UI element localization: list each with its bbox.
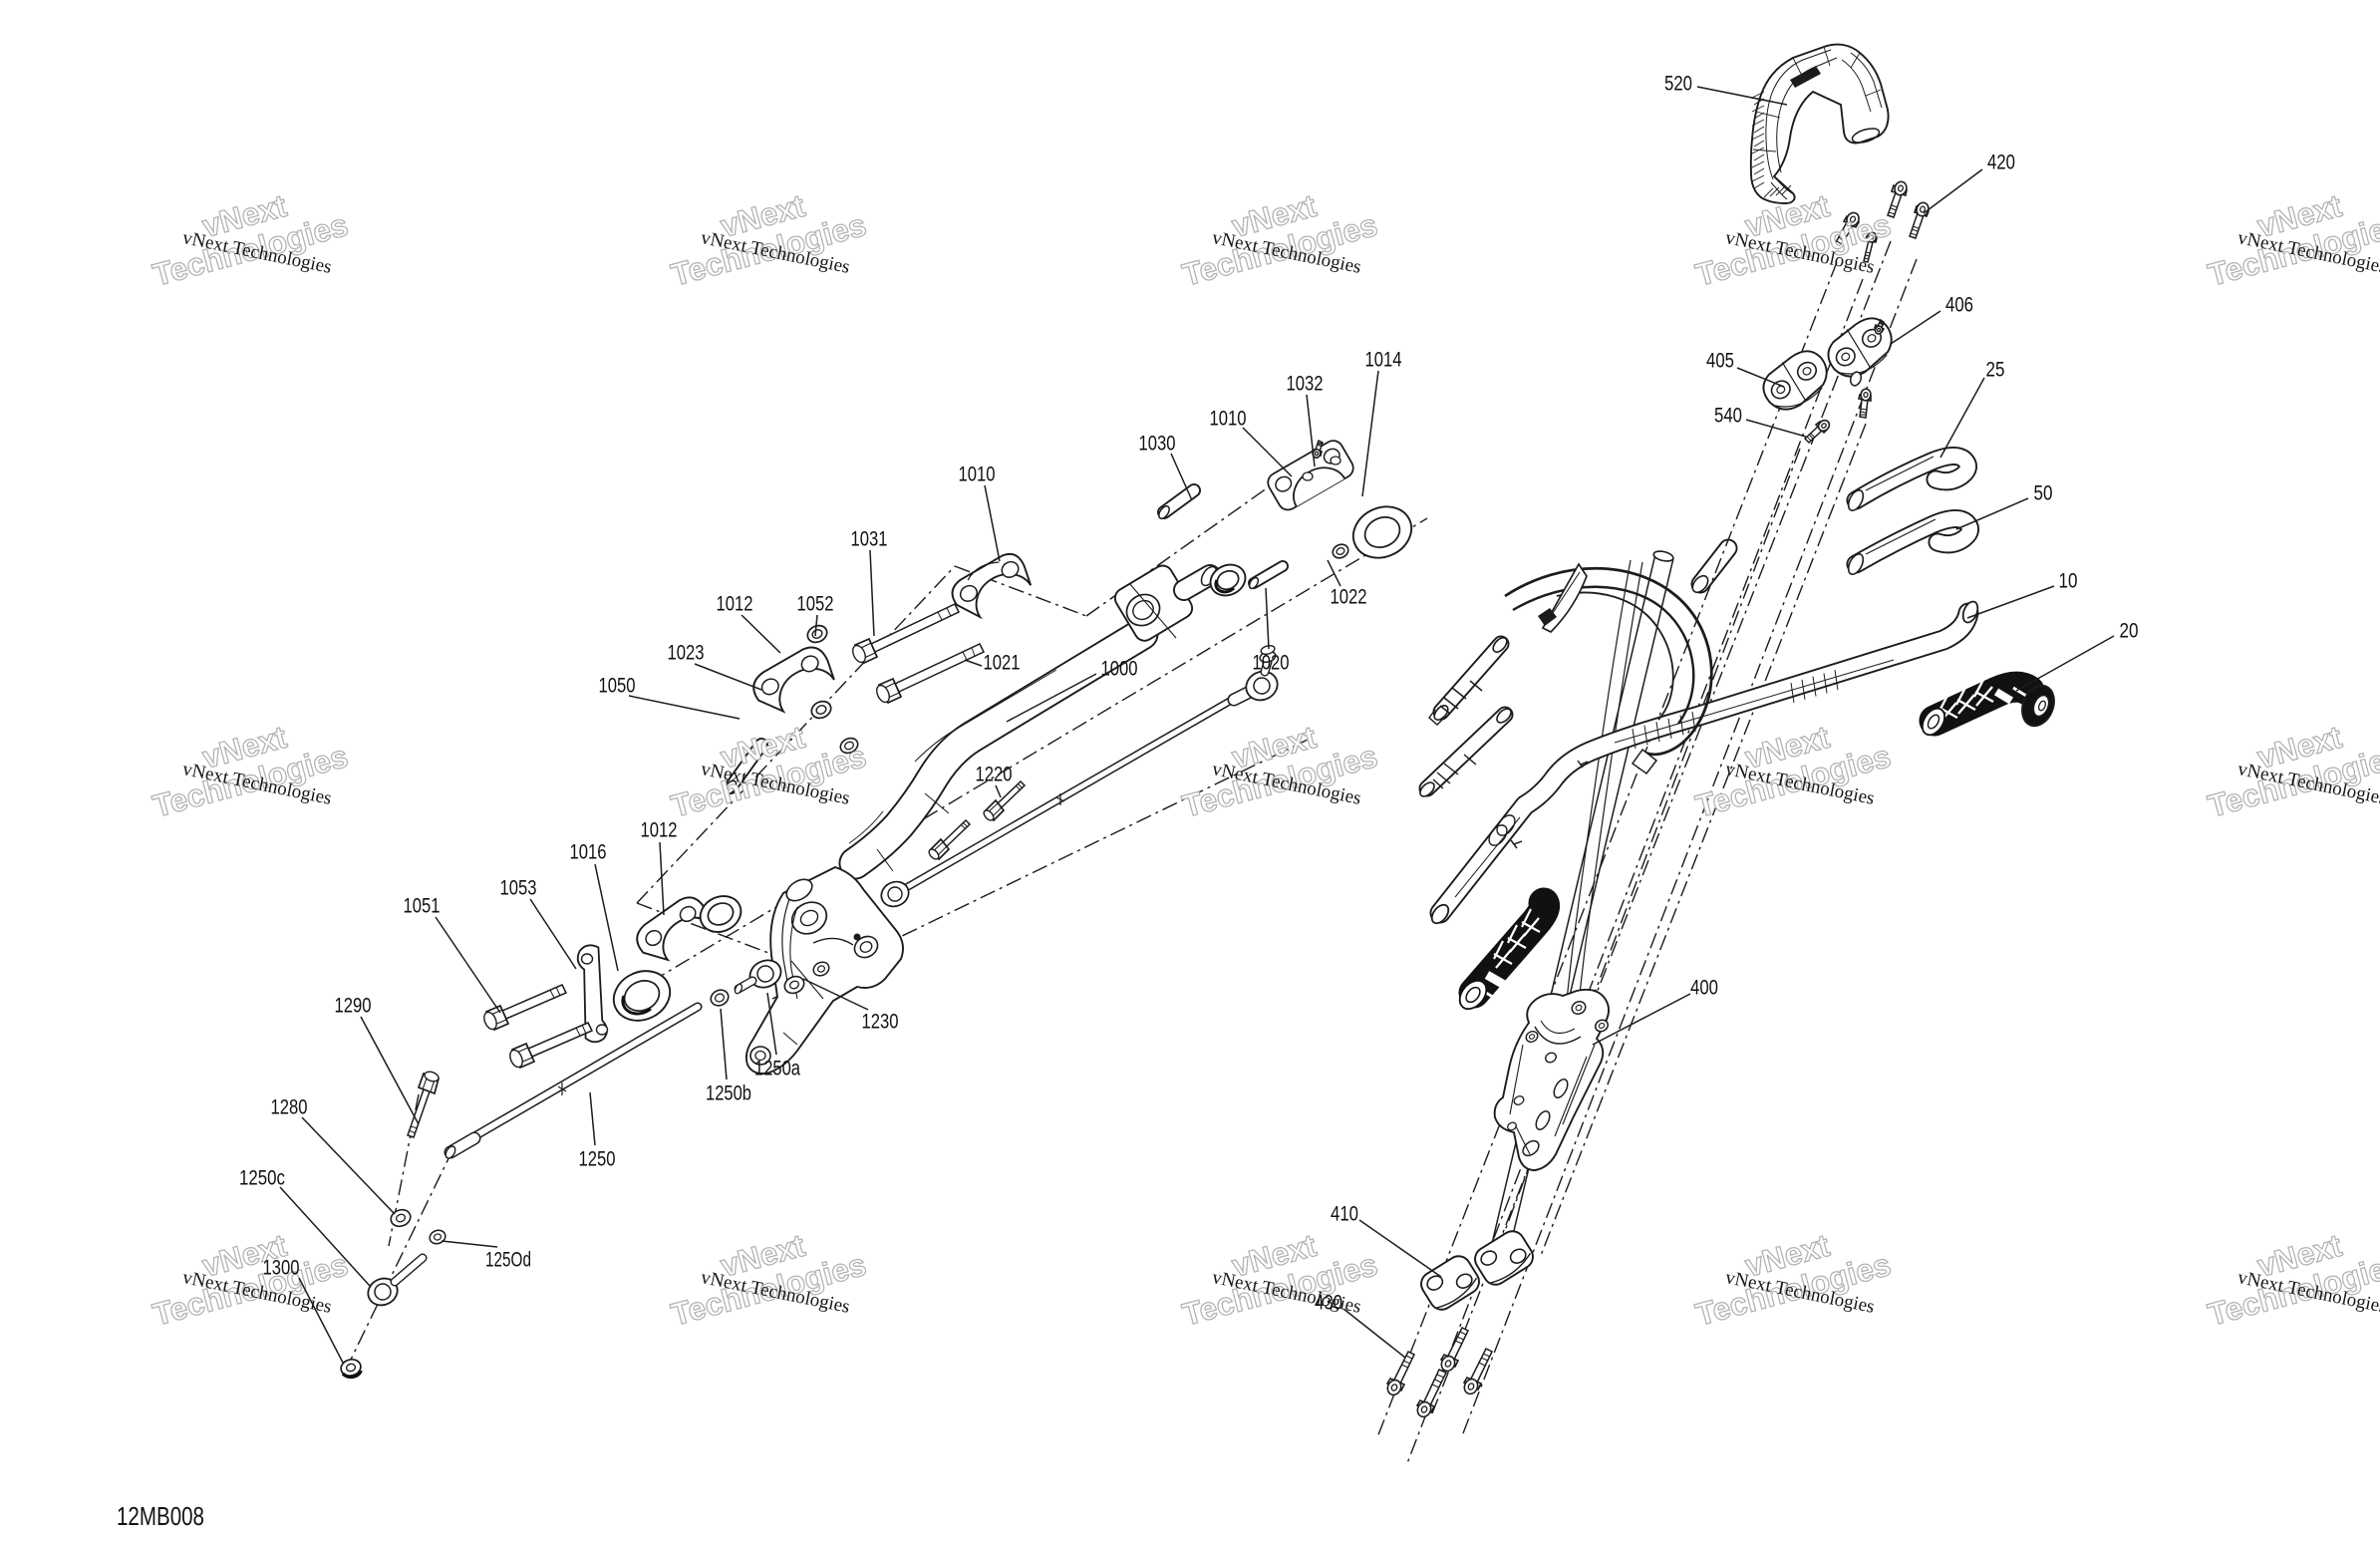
svg-text:1030: 1030 (1139, 432, 1176, 456)
svg-text:540: 540 (1714, 404, 1742, 428)
svg-text:1000: 1000 (1101, 657, 1138, 681)
svg-text:1050: 1050 (599, 674, 636, 698)
svg-text:1014: 1014 (1365, 348, 1402, 372)
svg-text:1250a: 1250a (754, 1057, 800, 1081)
svg-text:1032: 1032 (1287, 372, 1324, 396)
svg-text:1220: 1220 (976, 763, 1013, 786)
svg-text:1020: 1020 (1253, 651, 1290, 675)
svg-text:1230: 1230 (862, 1010, 899, 1034)
svg-text:1300: 1300 (263, 1256, 300, 1280)
svg-text:1022: 1022 (1331, 585, 1367, 609)
svg-text:1031: 1031 (851, 527, 888, 551)
svg-text:1012: 1012 (717, 592, 753, 616)
svg-text:420: 420 (1987, 151, 2015, 174)
svg-text:1250: 1250 (579, 1147, 616, 1171)
svg-text:1250b: 1250b (706, 1081, 751, 1105)
svg-text:1010: 1010 (959, 463, 996, 486)
svg-text:430: 430 (1315, 1291, 1342, 1315)
svg-text:1280: 1280 (271, 1095, 308, 1119)
svg-text:1021: 1021 (984, 651, 1021, 675)
svg-text:1052: 1052 (797, 592, 834, 616)
svg-text:405: 405 (1706, 349, 1734, 373)
svg-text:406: 406 (1945, 293, 1973, 317)
svg-text:20: 20 (2120, 619, 2139, 643)
svg-text:520: 520 (1664, 72, 1692, 96)
svg-text:410: 410 (1331, 1202, 1358, 1226)
svg-text:1010: 1010 (1210, 407, 1247, 431)
svg-text:1290: 1290 (335, 994, 372, 1018)
svg-text:1250c: 1250c (239, 1166, 285, 1190)
svg-text:1053: 1053 (500, 876, 537, 900)
svg-text:50: 50 (2034, 481, 2053, 505)
svg-text:1023: 1023 (668, 641, 705, 665)
svg-text:1051: 1051 (404, 894, 441, 918)
svg-text:10: 10 (2059, 569, 2078, 593)
svg-text:1016: 1016 (570, 840, 607, 864)
svg-text:125Od: 125Od (485, 1248, 531, 1272)
svg-text:1012: 1012 (641, 818, 678, 842)
svg-text:12MB008: 12MB008 (117, 1501, 204, 1531)
svg-text:400: 400 (1690, 976, 1718, 1000)
svg-text:25: 25 (1986, 358, 2005, 382)
